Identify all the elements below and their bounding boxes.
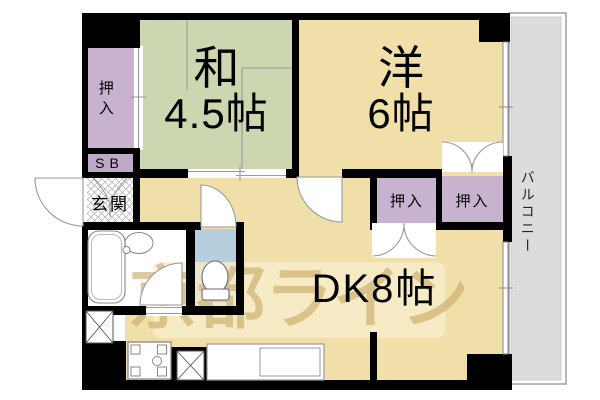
entrance-door-swing	[35, 178, 83, 226]
dk-window	[503, 242, 508, 354]
toilet-tank	[202, 289, 229, 300]
stove-unit	[128, 342, 171, 379]
oshiire-dk-label: 押入	[376, 194, 438, 210]
oshiire-youshitsu-label: 押入	[441, 194, 504, 210]
washitsu-label: 和 4.5帖	[140, 44, 293, 136]
shaft-box	[86, 311, 113, 343]
kitchen-counter	[207, 344, 324, 380]
dk-label: DK8帖	[272, 268, 477, 310]
bathtub	[88, 231, 125, 303]
balcony-label: バルコニー	[520, 152, 535, 272]
wall-topleft-block	[82, 13, 140, 48]
shoe-box-label: SB	[85, 156, 134, 171]
balcony-floor	[511, 17, 561, 380]
bath-doorway-threshold	[145, 306, 183, 316]
oshiire-dk-double-doors	[372, 223, 436, 258]
youshitsu-size: 6帖	[298, 92, 504, 136]
wall-bottomright-step	[467, 354, 512, 390]
wall-bottom	[82, 380, 467, 390]
youshitsu-label: 洋 6帖	[298, 44, 504, 136]
wall-topright-block	[479, 13, 510, 42]
toilet-bowl	[202, 261, 228, 293]
genkan-label: 玄関	[84, 196, 136, 214]
wall-toilet-right	[236, 222, 244, 315]
wall-dk-stub	[370, 332, 377, 382]
wall-seg	[286, 169, 297, 178]
wall-bath-top	[82, 222, 201, 230]
wall-washitsu-bottom	[134, 169, 188, 178]
shaft-box-2	[177, 351, 204, 380]
wall-bath-bottom-right	[182, 306, 243, 315]
youshitsu-name: 洋	[298, 44, 504, 92]
wall-sb-bottom	[82, 172, 140, 178]
wall-seg	[342, 169, 442, 178]
kitchen-sink	[260, 348, 320, 376]
oshiire-left-label: 押入	[97, 68, 113, 132]
wall-closet-bottom	[436, 222, 512, 230]
washitsu-name: 和	[140, 44, 293, 92]
wall-oshiire-bottom	[82, 148, 140, 154]
wall-bath-toilet	[186, 229, 195, 309]
basin-drain	[123, 247, 130, 254]
washitsu-size: 4.5帖	[140, 92, 293, 136]
floor-plan: 京都ライン	[0, 0, 600, 400]
oshiire-youshitsu-double-doors	[442, 142, 503, 172]
